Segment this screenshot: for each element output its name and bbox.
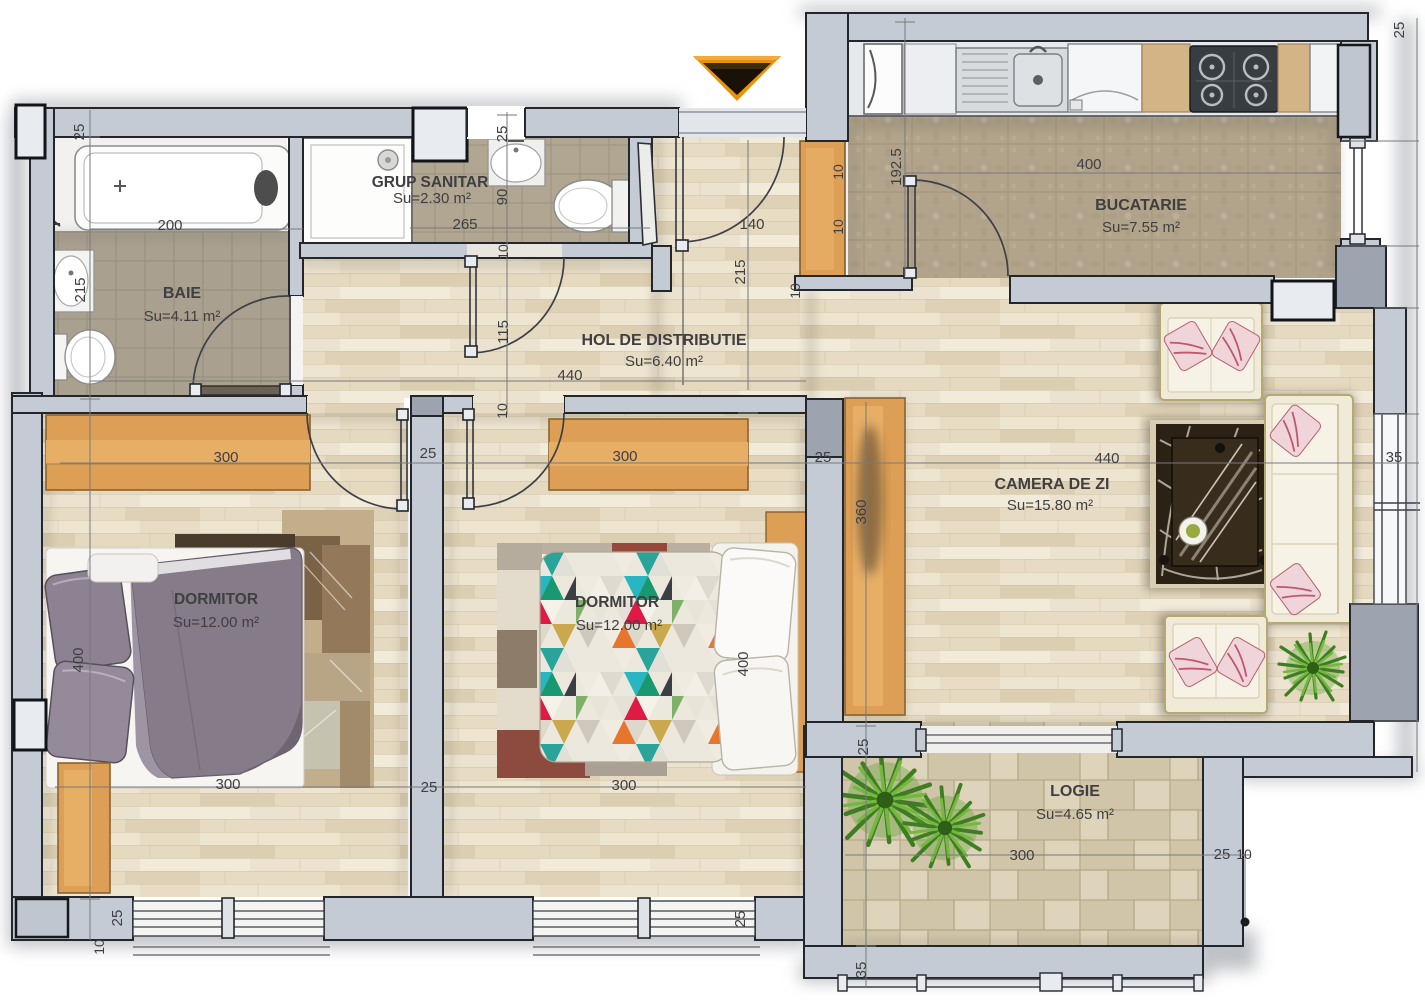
- svg-text:BAIE: BAIE: [163, 285, 202, 302]
- svg-text:25: 25: [421, 779, 438, 796]
- svg-text:BUCATARIE: BUCATARIE: [1095, 197, 1187, 214]
- svg-text:35: 35: [1386, 449, 1403, 466]
- svg-text:300: 300: [612, 448, 637, 465]
- svg-text:300: 300: [1009, 847, 1034, 864]
- svg-text:10: 10: [1236, 846, 1252, 862]
- svg-text:25: 25: [1214, 846, 1231, 863]
- svg-text:Su=4.65 m²: Su=4.65 m²: [1036, 806, 1114, 823]
- svg-text:Su=4.11 m²: Su=4.11 m²: [144, 308, 221, 325]
- svg-text:Su=2.30 m²: Su=2.30 m²: [393, 190, 471, 207]
- svg-text:Su=12.00 m²: Su=12.00 m²: [576, 617, 662, 634]
- svg-text:10: 10: [494, 403, 510, 419]
- svg-text:140: 140: [739, 216, 764, 233]
- svg-text:GRUP SANITAR: GRUP SANITAR: [372, 174, 489, 191]
- svg-text:25: 25: [732, 911, 749, 928]
- svg-text:192.5: 192.5: [888, 148, 905, 186]
- svg-text:215: 215: [72, 277, 89, 302]
- svg-text:300: 300: [611, 777, 636, 794]
- svg-text:Su=6.40 m²: Su=6.40 m²: [625, 353, 703, 370]
- svg-text:Su=12.00 m²: Su=12.00 m²: [173, 614, 259, 631]
- svg-text:300: 300: [213, 449, 238, 466]
- svg-text:265: 265: [452, 216, 477, 233]
- svg-text:CAMERA DE ZI: CAMERA DE ZI: [995, 476, 1110, 493]
- svg-text:25: 25: [1391, 22, 1408, 39]
- svg-text:Su=15.80 m²: Su=15.80 m²: [1007, 497, 1093, 514]
- svg-text:25: 25: [71, 124, 88, 141]
- svg-text:DORMITOR: DORMITOR: [575, 594, 659, 611]
- svg-text:300: 300: [215, 776, 240, 793]
- svg-text:400: 400: [1076, 156, 1101, 173]
- svg-text:25: 25: [109, 910, 126, 927]
- svg-text:25: 25: [815, 449, 832, 466]
- svg-text:440: 440: [557, 367, 582, 384]
- svg-text:10: 10: [91, 939, 107, 955]
- svg-text:DORMITOR: DORMITOR: [174, 591, 258, 608]
- svg-text:90: 90: [494, 189, 511, 206]
- svg-text:215: 215: [732, 259, 749, 284]
- svg-text:115: 115: [495, 320, 512, 344]
- svg-text:25: 25: [420, 445, 437, 462]
- svg-text:LOGIE: LOGIE: [1050, 783, 1100, 800]
- svg-text:10: 10: [787, 283, 803, 299]
- svg-text:200: 200: [157, 217, 182, 234]
- svg-text:Su=7.55 m²: Su=7.55 m²: [1102, 219, 1180, 236]
- svg-text:10: 10: [495, 244, 511, 260]
- svg-text:360: 360: [853, 499, 870, 524]
- svg-text:HOL DE DISTRIBUTIE: HOL DE DISTRIBUTIE: [581, 332, 746, 349]
- svg-text:440: 440: [1094, 450, 1119, 467]
- svg-text:400: 400: [735, 651, 752, 676]
- svg-text:10: 10: [830, 164, 846, 180]
- svg-text:35: 35: [853, 962, 870, 979]
- svg-text:25: 25: [855, 739, 872, 756]
- svg-text:25: 25: [494, 126, 511, 143]
- svg-text:10: 10: [830, 219, 846, 235]
- svg-text:400: 400: [70, 647, 87, 672]
